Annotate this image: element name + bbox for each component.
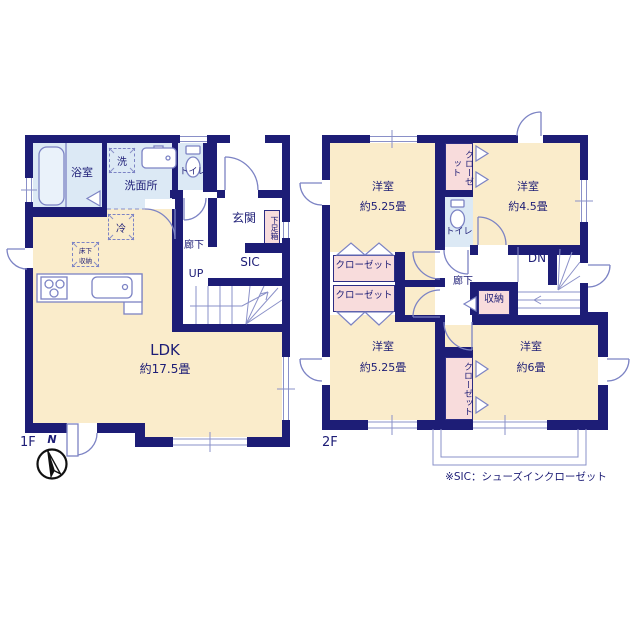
sic-label: SIC (233, 256, 267, 270)
floorplan-canvas: 浴室 洗 洗面所 トイレ 冷 床下収納 玄関 下足箱 廊下 SIC UP LDK… (0, 0, 640, 640)
underfloor-storage-box: 床下収納 (72, 242, 99, 267)
compass-icon (38, 449, 67, 478)
hallway-2f-label: 廊下 (446, 276, 480, 288)
bathroom-label: 浴室 (58, 167, 106, 180)
bedroom-ne-size-label: 約4.5畳 (492, 201, 564, 214)
stairs-1f (190, 286, 282, 324)
storage-label: 収納 (478, 294, 510, 306)
kitchen-counter-icon (37, 274, 142, 314)
bedroom-sw-size-label: 約5.25畳 (345, 362, 421, 375)
washstand-icon (142, 146, 176, 168)
stairs-up-label: UP (181, 268, 211, 281)
closet-west1-label: クローゼット (334, 261, 394, 272)
washroom-label: 洗面所 (108, 180, 174, 193)
fridge-box: 冷 (108, 214, 134, 240)
balcony-outline (433, 429, 586, 465)
closet-west2-label: クローゼット (334, 291, 394, 302)
ldk-size-label: 約17.5畳 (115, 363, 215, 377)
bedroom-ne-label: 洋室 (496, 181, 560, 194)
washer-label: 洗 (117, 153, 127, 168)
toilet-2f-label: トイレ (442, 227, 476, 237)
bedroom-se-size-label: 約6畳 (499, 362, 563, 375)
floor-2f-label: 2F (322, 436, 354, 451)
shoe-box-label: 下足箱 (264, 213, 280, 243)
compass-n-label: N (44, 434, 60, 447)
bedroom-nw-size-label: 約5.25畳 (345, 201, 421, 214)
plan-symbols (0, 0, 640, 640)
hallway-1f-label: 廊下 (179, 240, 209, 252)
bedroom-se-label: 洋室 (499, 341, 563, 354)
ldk-label: LDK (115, 342, 215, 359)
entrance-label: 玄関 (224, 212, 264, 226)
sic-footnote: ※SIC：シューズインクローゼット (438, 471, 614, 483)
closet-north-label: クローゼット (444, 147, 474, 189)
washer-box: 洗 (109, 148, 135, 173)
toilet-1f-label: トイレ (176, 167, 210, 177)
closet-south-label: クローゼット (447, 360, 473, 418)
fridge-label: 冷 (116, 220, 126, 235)
bedroom-sw-label: 洋室 (351, 341, 415, 354)
stairs-dn-label: DN (522, 252, 552, 266)
underfloor-storage-label: 床下収納 (78, 245, 93, 265)
toilet-2f-icon (451, 200, 465, 228)
bedroom-nw-label: 洋室 (351, 181, 415, 194)
